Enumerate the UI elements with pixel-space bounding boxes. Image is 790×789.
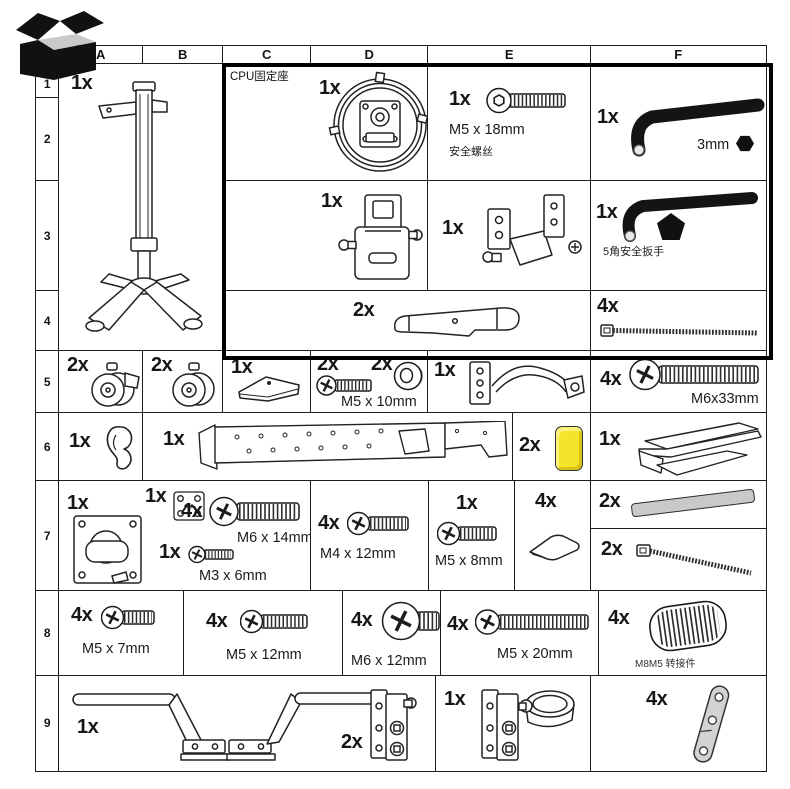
row-label: 9 [44, 716, 51, 730]
glide-pad-illustration [524, 531, 584, 563]
qty-label: 4x [646, 688, 667, 711]
cell-caster: 2x [142, 350, 224, 414]
qty-label: 4x [608, 607, 629, 630]
screw-size-label: M5 x 8mm [435, 553, 503, 569]
column-header-c: C [222, 45, 312, 65]
tilt-bracket-illustration [627, 417, 763, 481]
screw-size-label: M5 x 10mm [341, 394, 417, 410]
cell-handle-bar: 2x [222, 290, 592, 352]
cell-screw-m5x8: 1x M5 x 8mm [428, 480, 516, 592]
row-number-4: 4 [35, 290, 60, 352]
qty-label: 1x [67, 492, 88, 515]
cell-cable-clip: 1x [58, 412, 144, 482]
qty-label: 4x [181, 500, 202, 523]
washer-illustration [391, 359, 425, 393]
cable-tie-illustration [635, 541, 755, 581]
cell-screw-m4x12: 4x M4 x 12mm [310, 480, 430, 592]
corner-bracket-illustration [480, 193, 584, 281]
cell-cover-cap: 1x [222, 350, 312, 414]
qty-label: 1x [449, 88, 470, 111]
screw-illustration [629, 355, 761, 395]
pole-clamp-illustration [478, 682, 586, 768]
screw-size-label: M5 x 12mm [226, 647, 302, 663]
qty-label: 1x [163, 428, 184, 451]
cover-cap-illustration [235, 373, 303, 405]
screw-size-label: M6x33mm [691, 391, 759, 407]
qty-label: 4x [535, 490, 556, 513]
screw-size-label: M4 x 12mm [320, 546, 396, 562]
qty-label: 1x [456, 492, 477, 515]
cell-crossbar-frame: 1x 2x [58, 675, 437, 772]
cable-clip-illustration [101, 423, 139, 475]
row-label: 6 [44, 440, 51, 454]
cell-security-wrench: 1x 5角安全扳手 [590, 180, 767, 292]
qty-label: 2x [371, 353, 392, 376]
row-label: 4 [44, 314, 51, 328]
cell-thread-adapter: 4x M8M5 转接件 [598, 590, 767, 677]
thread-adapter-illustration [637, 595, 739, 657]
screw-illustration [209, 492, 303, 532]
cell-screw-m5x12: 4x M5 x 12mm [183, 590, 344, 677]
row-label: 5 [44, 375, 51, 389]
screw-size-label: M6 x 14mm [237, 530, 312, 546]
qty-label: 1x [444, 688, 465, 711]
qty-label: 1x [597, 106, 618, 129]
handle-bar-illustration [387, 299, 525, 345]
row-label: 8 [44, 626, 51, 640]
safety-screw-illustration [486, 84, 568, 118]
vesa-plate-illustration [72, 514, 144, 586]
cell-cpu-holder: CPU固定座 1x [222, 63, 429, 182]
column-label: B [178, 47, 187, 62]
cell-corner-bracket: 1x [427, 180, 592, 292]
cell-pole-clamp: 1x [435, 675, 592, 772]
foam-strip-illustration [631, 488, 756, 517]
qty-label: 4x [600, 368, 621, 391]
cable-tie-illustration [599, 319, 761, 343]
qty-label: 1x [145, 485, 166, 508]
cell-caster-locking: 2x [58, 350, 144, 414]
cell-link-strap: 4x [590, 675, 767, 772]
qty-label: 2x [353, 299, 374, 322]
cell-screw-m5x10: 2x 2x M5 x 10mm [310, 350, 429, 414]
screw-illustration [475, 605, 591, 641]
qty-label: 4x [206, 610, 227, 633]
qty-label: 2x [519, 434, 540, 457]
cell-monitor-stand: 1x [58, 63, 224, 352]
screw-size-label: M5 x 20mm [497, 646, 573, 662]
wrench-note-label: 5角安全扳手 [603, 243, 664, 259]
qty-label: 4x [318, 512, 339, 535]
cell-screw-m5x7: 4x M5 x 7mm [58, 590, 185, 677]
screw-size-label: M5 x 7mm [82, 641, 150, 657]
cell-yellow-spacer: 2x [512, 412, 592, 482]
qty-label: 1x [159, 541, 180, 564]
cpu-holder-title: CPU固定座 [230, 68, 289, 84]
qty-label: 1x [599, 428, 620, 451]
hex-size-label: 3mm [697, 137, 729, 153]
column-label: D [365, 47, 374, 62]
clamp-plates-illustration [367, 684, 417, 766]
cell-cable-tie-long: 4x [590, 290, 767, 352]
qty-label: 4x [351, 609, 372, 632]
crossbar-frame-illustration [69, 684, 381, 766]
cell-screw-m6x12: 4x M6 x 12mm [342, 590, 442, 677]
screw-size-label: M5 x 18mm [449, 122, 525, 138]
cell-safety-screw: 1x M5 x 18mm 安全螺丝 [427, 63, 592, 182]
column-header-b: B [142, 45, 224, 65]
cell-support-rail: 1x [142, 412, 514, 482]
screw-size-label: M6 x 12mm [351, 653, 427, 669]
screw-illustration [347, 507, 411, 541]
cpu-bracket-illustration [333, 193, 425, 283]
qty-label: 2x [599, 490, 620, 513]
cell-glide-pad: 4x [514, 480, 592, 592]
row-label: 3 [44, 229, 51, 243]
cell-cable-tie-short: 2x [590, 528, 767, 592]
row-number-9: 9 [35, 675, 60, 772]
cell-screw-m5x20: 4x M5 x 20mm [440, 590, 600, 677]
caster-illustration [167, 361, 219, 411]
cpu-holder-illustration [328, 69, 428, 179]
row-label: 7 [44, 529, 51, 543]
link-strap-illustration [677, 682, 745, 768]
column-label: F [674, 47, 682, 62]
column-header-f: F [590, 45, 767, 65]
cell-hex-key-3mm: 1x 3mm [590, 63, 767, 182]
row-number-6: 6 [35, 412, 60, 482]
screw-illustration [381, 597, 441, 645]
qty-label: 1x [434, 359, 455, 382]
adapter-label: M8M5 转接件 [635, 655, 696, 670]
qty-label: 4x [597, 295, 618, 318]
locking-caster-illustration [85, 361, 141, 411]
column-header-d: D [310, 45, 429, 65]
qty-label: 1x [596, 201, 617, 224]
row-number-5: 5 [35, 350, 60, 414]
screw-size-label: M3 x 6mm [199, 568, 267, 584]
qty-label: 4x [447, 613, 468, 636]
parts-diagram-page: A B C D E F 1 2 3 4 5 6 7 8 9 1x [0, 0, 790, 789]
screw-illustration [240, 605, 310, 639]
row-number-8: 8 [35, 590, 60, 677]
screw-illustration [188, 542, 236, 568]
headset-hook-illustration [466, 356, 588, 410]
screw-note-label: 安全螺丝 [449, 143, 493, 159]
column-label: E [505, 47, 514, 62]
cell-tilt-bracket: 1x [590, 412, 767, 482]
security-wrench-illustration [618, 186, 758, 244]
qty-label: 1x [442, 217, 463, 240]
qty-label: 2x [341, 731, 362, 754]
row-label: 2 [44, 132, 51, 146]
row-number-7: 7 [35, 480, 60, 592]
cell-screw-m6x33: 4x M6x33mm [590, 350, 767, 414]
cell-cpu-bracket: 1x [222, 180, 429, 292]
qty-label: 4x [71, 604, 92, 627]
support-rail-illustration [193, 421, 511, 475]
screw-illustration [101, 601, 157, 635]
yellow-spacer-illustration [555, 426, 583, 471]
cell-foam-strip: 2x [590, 480, 767, 530]
screw-illustration [437, 517, 499, 551]
cell-headset-hook: 1x [427, 350, 592, 414]
column-label: C [262, 47, 271, 62]
row-number-2: 2 [35, 97, 60, 182]
qty-label: 2x [601, 538, 622, 561]
open-box-icon [8, 4, 108, 80]
cell-vesa-group: 1x 1x 4x M6 [58, 480, 312, 592]
column-header-e: E [427, 45, 592, 65]
row-number-3: 3 [35, 180, 60, 292]
monitor-stand-illustration [81, 78, 211, 343]
qty-label: 1x [69, 430, 90, 453]
